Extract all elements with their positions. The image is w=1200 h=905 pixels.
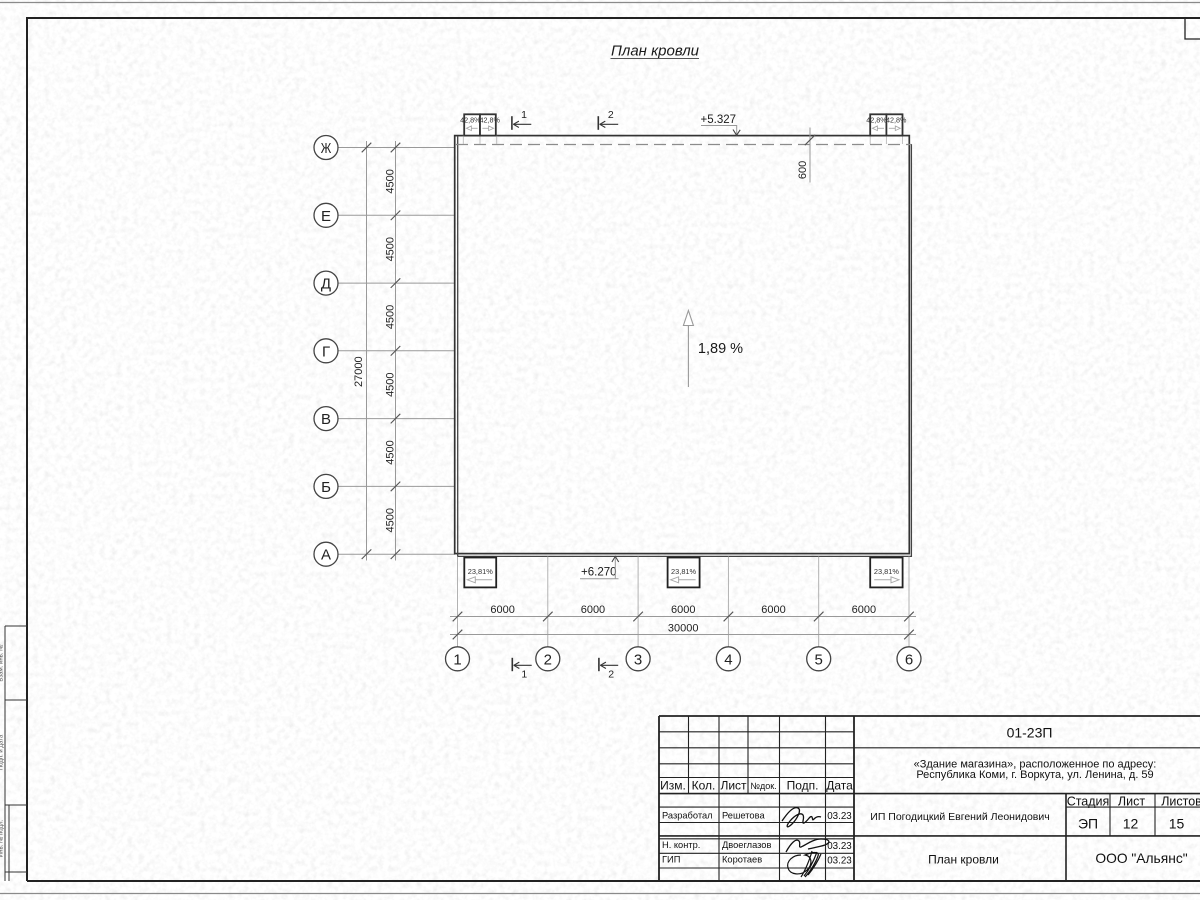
svg-text:23,81%: 23,81% — [468, 567, 493, 576]
svg-text:План кровли: План кровли — [611, 43, 700, 60]
svg-text:23,81%: 23,81% — [671, 567, 696, 576]
svg-text:Д: Д — [321, 276, 331, 293]
svg-text:6000: 6000 — [671, 604, 695, 616]
svg-text:1,89 %: 1,89 % — [698, 341, 743, 357]
svg-text:42,8%: 42,8% — [866, 116, 887, 125]
svg-text:30000: 30000 — [668, 623, 699, 635]
svg-text:Подп.: Подп. — [787, 778, 819, 792]
svg-text:4500: 4500 — [385, 169, 397, 193]
svg-text:+5.327: +5.327 — [701, 114, 737, 126]
svg-text:42,8%: 42,8% — [480, 116, 501, 125]
svg-text:Двоеглазов: Двоеглазов — [722, 840, 771, 850]
svg-text:03.23: 03.23 — [827, 811, 852, 822]
svg-text:Листов: Листов — [1161, 794, 1200, 808]
svg-text:Г: Г — [322, 343, 330, 360]
svg-text:В: В — [321, 411, 331, 428]
svg-text:4500: 4500 — [385, 372, 397, 396]
svg-text:1: 1 — [521, 109, 527, 121]
svg-text:Е: Е — [321, 208, 331, 225]
svg-text:Взам. инв. №: Взам. инв. № — [0, 644, 5, 681]
svg-text:4500: 4500 — [385, 237, 397, 261]
svg-text:42,8%: 42,8% — [460, 116, 481, 125]
svg-text:Стадия: Стадия — [1067, 794, 1110, 808]
svg-text:27000: 27000 — [353, 356, 365, 387]
svg-text:1: 1 — [453, 651, 461, 668]
svg-text:2: 2 — [608, 109, 614, 121]
svg-text:23,81%: 23,81% — [874, 567, 899, 576]
svg-text:Коротаев: Коротаев — [722, 855, 762, 865]
svg-text:Н. контр.: Н. контр. — [662, 840, 700, 850]
svg-text:42,8%: 42,8% — [886, 116, 907, 125]
svg-text:6: 6 — [905, 651, 913, 668]
svg-text:5: 5 — [815, 651, 823, 668]
svg-text:ООО "Альянс": ООО "Альянс" — [1095, 851, 1187, 866]
svg-text:+6.270: +6.270 — [581, 567, 617, 579]
svg-text:Кол.: Кол. — [692, 778, 716, 792]
svg-text:Решетова: Решетова — [722, 810, 765, 820]
svg-text:Ж: Ж — [321, 140, 332, 157]
svg-text:4500: 4500 — [385, 508, 397, 532]
svg-text:6000: 6000 — [852, 604, 876, 616]
svg-text:Дата: Дата — [826, 778, 853, 792]
svg-text:Республика Коми, г. Воркута, у: Республика Коми, г. Воркута, ул. Ленина,… — [916, 769, 1153, 781]
svg-text:№док.: №док. — [750, 781, 776, 791]
svg-text:ЭП: ЭП — [1078, 816, 1098, 832]
svg-text:6000: 6000 — [581, 604, 605, 616]
svg-text:4500: 4500 — [385, 440, 397, 464]
svg-text:Разработал: Разработал — [662, 810, 713, 820]
svg-text:1: 1 — [521, 669, 527, 681]
svg-text:6000: 6000 — [490, 604, 514, 616]
svg-text:Лист: Лист — [1118, 794, 1145, 808]
svg-text:Б: Б — [321, 479, 331, 496]
svg-text:12: 12 — [1123, 816, 1139, 832]
svg-text:План кровли: План кровли — [928, 853, 999, 867]
svg-text:4: 4 — [724, 651, 732, 668]
svg-text:2: 2 — [608, 669, 614, 681]
svg-text:03.23: 03.23 — [827, 856, 852, 867]
svg-text:600: 600 — [797, 161, 809, 179]
svg-text:6000: 6000 — [761, 604, 785, 616]
svg-text:4500: 4500 — [385, 305, 397, 329]
svg-text:01-23П: 01-23П — [1007, 725, 1053, 741]
svg-text:Подп. и дата: Подп. и дата — [0, 734, 5, 770]
svg-text:Лист: Лист — [720, 778, 747, 792]
svg-text:А: А — [321, 547, 331, 564]
svg-text:03.23: 03.23 — [827, 841, 852, 852]
svg-text:ГИП: ГИП — [662, 855, 680, 865]
svg-text:Инв. № подл.: Инв. № подл. — [0, 819, 5, 857]
svg-text:3: 3 — [634, 651, 642, 668]
svg-text:15: 15 — [1169, 816, 1185, 832]
svg-text:ИП Погодицкий Евгений Леонидов: ИП Погодицкий Евгений Леонидович — [870, 811, 1049, 823]
svg-text:Изм.: Изм. — [660, 778, 686, 792]
svg-text:2: 2 — [544, 651, 552, 668]
